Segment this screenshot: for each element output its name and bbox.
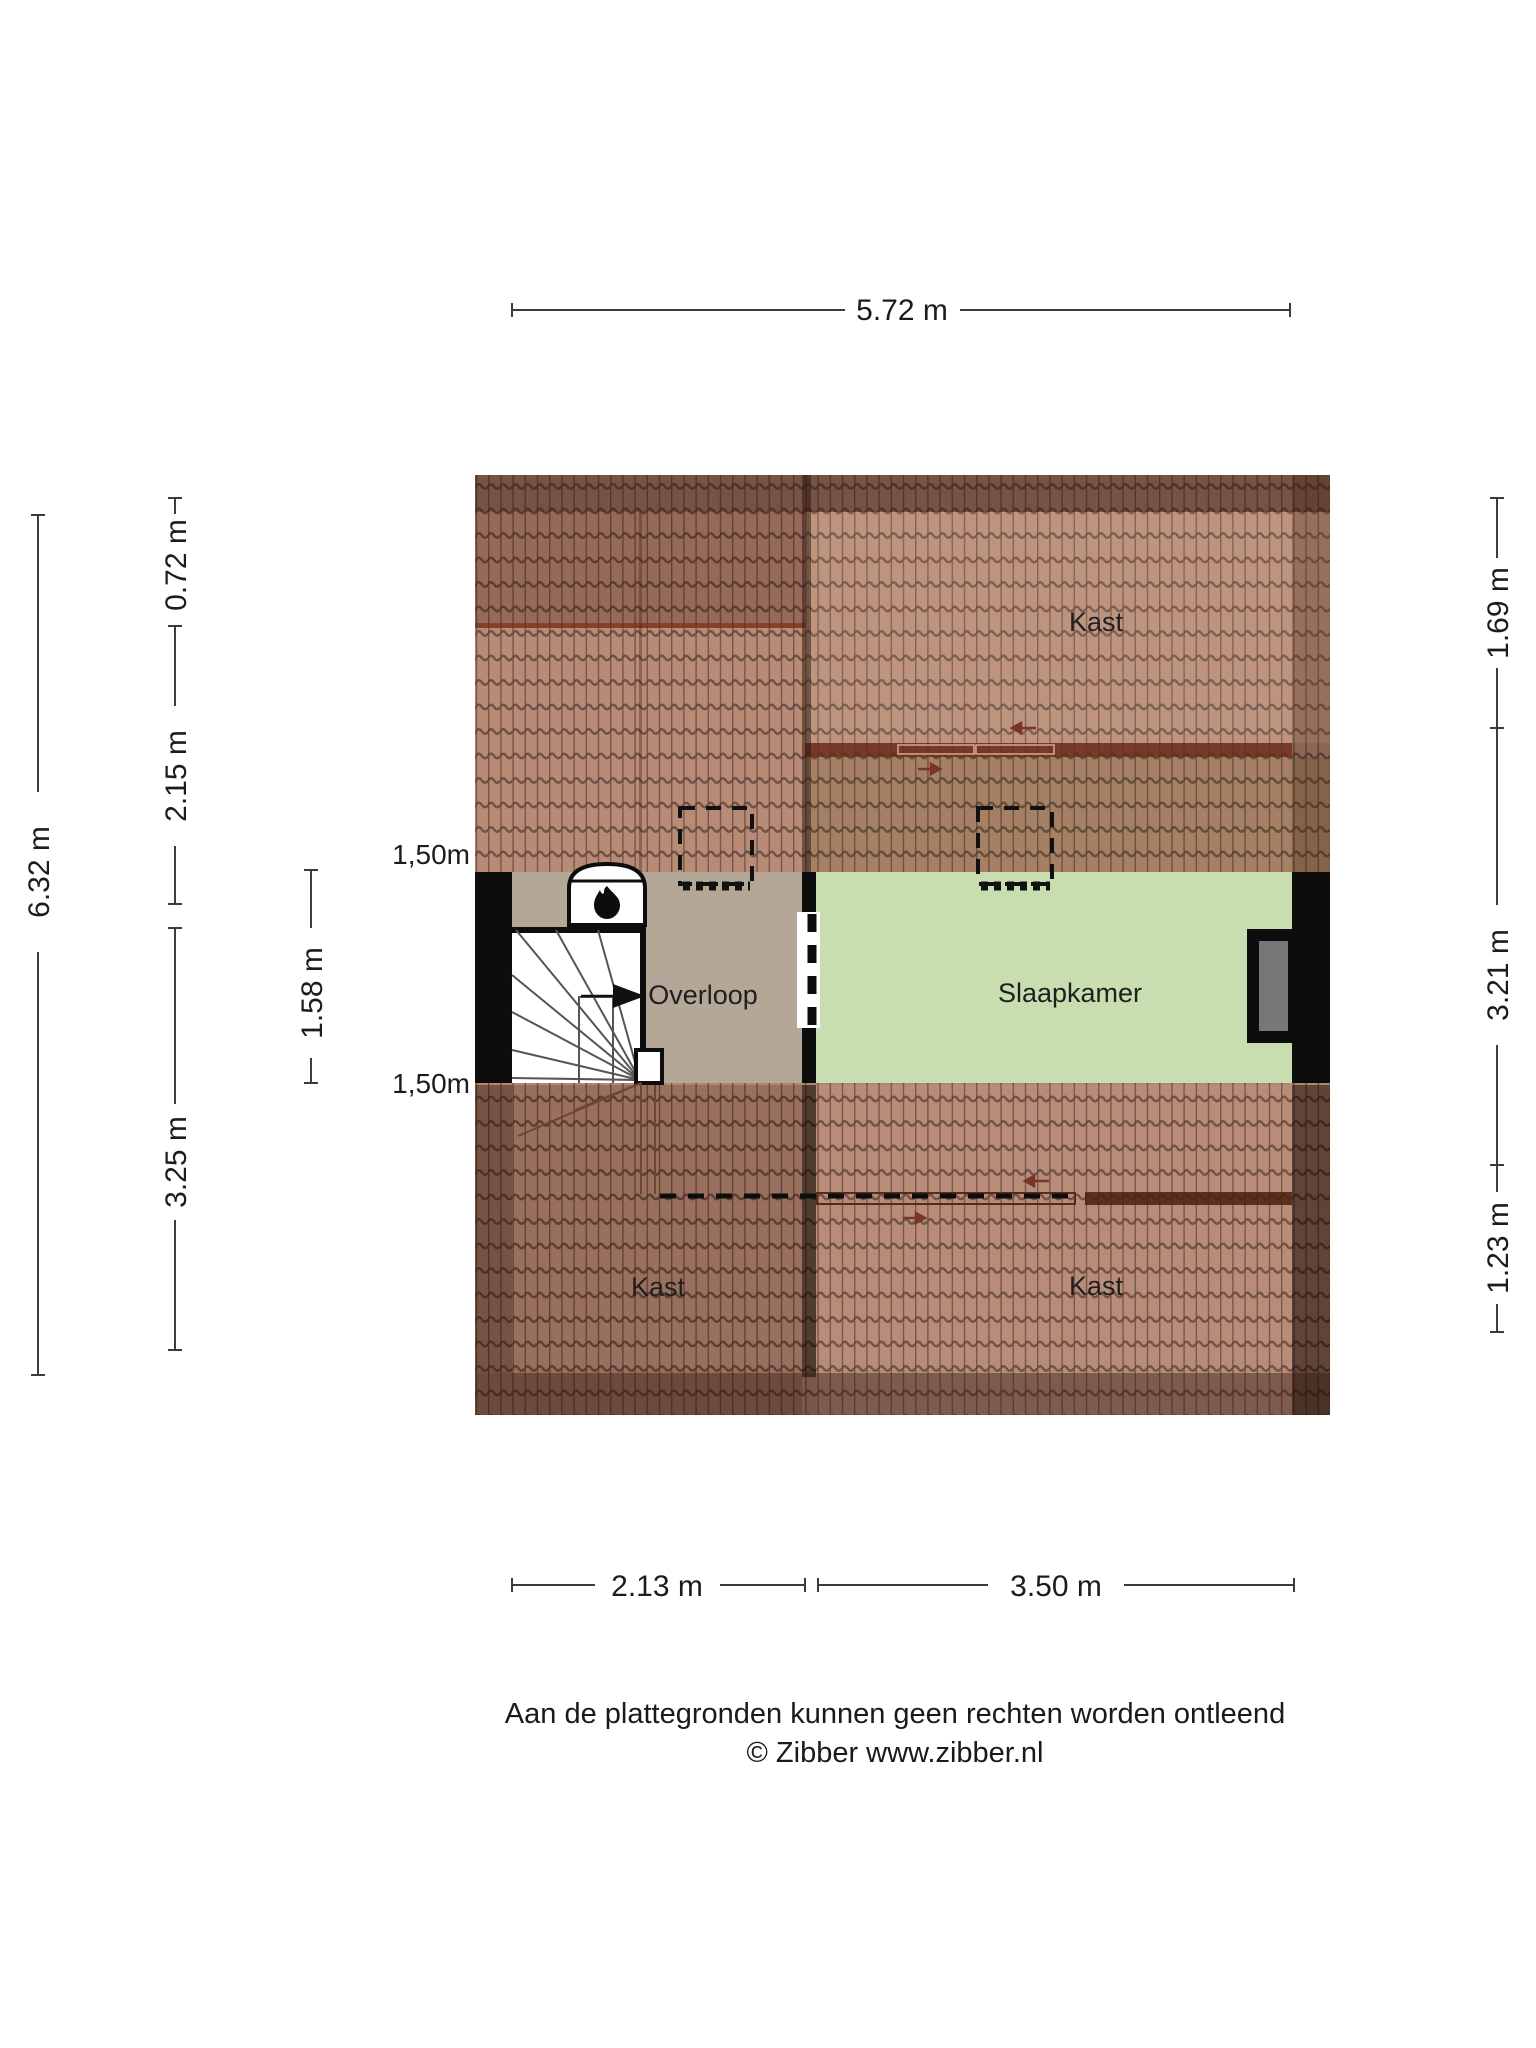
- roof-eave-band: [475, 1373, 1330, 1415]
- roof-shade-bottom-left: [475, 1085, 802, 1415]
- roof-edge-right-lower: [1292, 1085, 1330, 1415]
- dimension-right-seg3-label: 1.23 m: [1482, 1202, 1515, 1294]
- dimension-left-seg1-label: 0.72 m: [160, 519, 193, 611]
- wood-stove: [569, 864, 645, 925]
- dimension-left-seg3-label: 3.25 m: [160, 1116, 193, 1208]
- dimension-left-outer-label: 6.32 m: [23, 826, 56, 918]
- dimension-bottom-left-label: 2.13 m: [611, 1570, 703, 1603]
- label-kast-bottom-right: Kast: [1069, 1271, 1124, 1301]
- headroom-label-top: 1,50m: [392, 839, 470, 870]
- wall-left: [475, 872, 512, 1083]
- roof-seam-vertical-upper: [802, 475, 811, 872]
- roof-olive-band: [805, 757, 1330, 872]
- dimension-top-label: 5.72 m: [856, 294, 948, 327]
- roof-seam-faint: [639, 512, 642, 872]
- dimension-left-seg2-label: 2.15 m: [160, 730, 193, 822]
- label-kast-top: Kast: [1069, 607, 1124, 637]
- label-overloop: Overloop: [648, 980, 758, 1010]
- headroom-label-bottom: 1,50m: [392, 1068, 470, 1099]
- wall-right: [1292, 872, 1330, 1083]
- footer-copyright: © Zibber www.zibber.nl: [747, 1737, 1044, 1769]
- label-slaapkamer: Slaapkamer: [998, 978, 1142, 1008]
- roof-seam-vertical-lower: [802, 1085, 816, 1377]
- label-kast-bottom-left: Kast: [631, 1272, 686, 1302]
- roof-purlin-band-bottom: [1085, 1192, 1292, 1205]
- floorplan-canvas: Kast Overloop Slaapkamer Kast Kast 5.72 …: [0, 0, 1536, 2048]
- window-glass: [1259, 941, 1288, 1031]
- roof-light-bottom-right: [816, 1085, 1292, 1415]
- roof-edge-right-upper: [1292, 475, 1330, 872]
- window: [1247, 929, 1292, 1043]
- dimension-right-seg2-label: 3.21 m: [1482, 929, 1515, 1021]
- roof-ridge-band: [475, 475, 1330, 512]
- roof-edge-left-lower: [475, 1085, 512, 1373]
- dimension-landing-depth-label: 1.58 m: [296, 947, 329, 1039]
- footer-disclaimer: Aan de plattegronden kunnen geen rechten…: [505, 1698, 1285, 1730]
- door-opening: [797, 912, 820, 1028]
- roof-light-upper-right: [805, 512, 1330, 743]
- dimension-bottom-right-label: 3.50 m: [1010, 1570, 1102, 1603]
- stair-top-step: [636, 1050, 662, 1083]
- dimension-right-seg1-label: 1.69 m: [1482, 567, 1515, 659]
